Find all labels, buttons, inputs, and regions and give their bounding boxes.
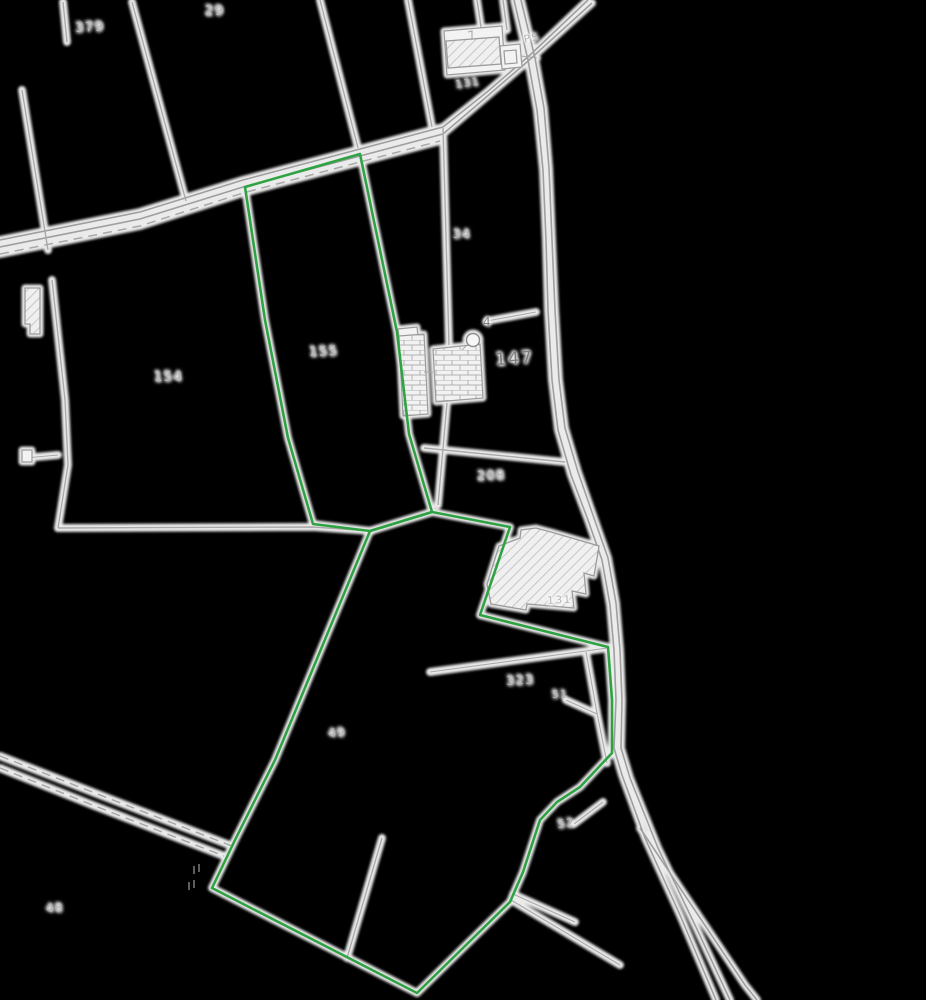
parcel-label-208: 208 bbox=[477, 469, 506, 482]
parcel-label-379: 379 bbox=[75, 20, 105, 35]
parcel-label-29: 29 bbox=[205, 5, 225, 18]
small-structure bbox=[22, 450, 32, 462]
parcel-label-34: 34 bbox=[453, 228, 471, 240]
parcel-line bbox=[22, 90, 48, 250]
parcel-line bbox=[320, 0, 358, 148]
north-farm-annex-inner bbox=[504, 50, 517, 64]
cadastral-map: 379 29 PS 131 155 154 34 147 4 208 131 3… bbox=[0, 0, 926, 1000]
parcel-line bbox=[408, 0, 432, 127]
parcel-label-49: 49 bbox=[328, 727, 346, 740]
parcel-line bbox=[132, 2, 186, 201]
east-road-edge-east bbox=[521, 0, 730, 1000]
southwest-track-edge-north bbox=[0, 756, 232, 846]
southeast-field-line bbox=[511, 900, 620, 965]
parcel-label-155: 155 bbox=[309, 345, 339, 359]
cadastral-map-canvas bbox=[0, 0, 926, 1000]
vegetation-ticks bbox=[189, 864, 199, 890]
house-number-label-4: 4 bbox=[483, 316, 492, 328]
parcel-label-48: 48 bbox=[46, 902, 64, 914]
building-label-131: 131 bbox=[547, 595, 572, 607]
parcel-label-154: 154 bbox=[154, 371, 183, 384]
parcel-label-52: 52 bbox=[557, 817, 576, 830]
farmstead-building-east bbox=[433, 344, 483, 402]
inner-field-line bbox=[347, 838, 382, 958]
old-track-line bbox=[430, 648, 608, 672]
parcel-label-51: 51 bbox=[552, 690, 568, 701]
parcel-label-323: 323 bbox=[506, 674, 535, 688]
well-circle-symbol bbox=[467, 334, 480, 347]
parcel-label-147: 147 bbox=[495, 350, 534, 369]
label-52-leader-line bbox=[574, 802, 603, 824]
parcel-boundary-lines bbox=[22, 0, 620, 965]
north-farm-building-hatched bbox=[446, 37, 501, 68]
